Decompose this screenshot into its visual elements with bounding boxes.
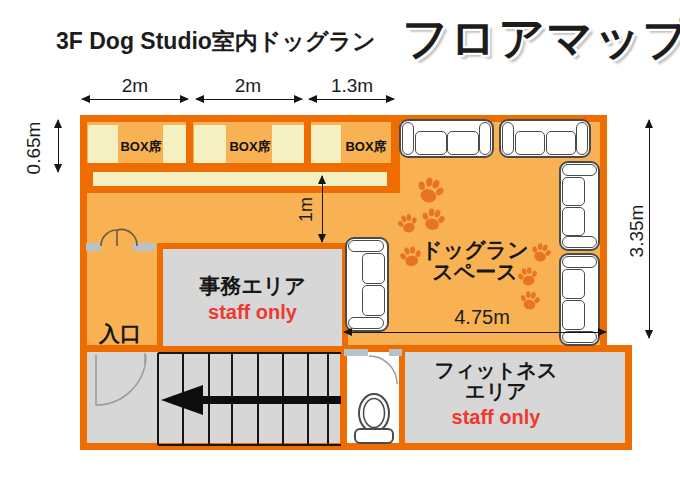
dimension-arrow-top-1: [82, 99, 188, 100]
dimension-label-right: 3.35m: [626, 196, 648, 266]
dimension-arrow-right: [649, 120, 650, 338]
sofa-top-right: [499, 119, 591, 158]
stairs: [157, 352, 343, 446]
dimension-label-top-1: 2m: [105, 75, 165, 97]
floor-map: 3F Dog Studio室内ドッグラン フロアマップ 2m 2m 1.3m 0…: [0, 0, 680, 485]
dog-run-label: ドッグラン スペース: [405, 239, 545, 283]
toilet-icon: [352, 392, 396, 446]
fitness-label-line1: フィットネス: [400, 360, 592, 381]
dimension-arrow-left: [58, 120, 59, 172]
page-title: 3F Dog Studio室内ドッグラン: [56, 26, 376, 57]
dimension-label-top-2: 2m: [218, 75, 278, 97]
dimension-label-4-75m: 4.75m: [432, 306, 532, 329]
fitness-staff-only-label: staff only: [400, 407, 592, 428]
dimension-arrow-4-75m: [344, 332, 606, 333]
toilet-wall-segment: [344, 349, 368, 356]
box-seat-label-3: BOX席: [341, 138, 391, 156]
office-label: 事務エリア: [199, 272, 305, 300]
entrance-label: 入口: [92, 320, 148, 348]
dimension-arrow-top-2: [196, 99, 302, 100]
dimension-label-top-3: 1.3m: [322, 75, 382, 97]
dog-run-label-line1: ドッグラン: [405, 239, 545, 261]
toilet-door-swing-icon: [366, 353, 402, 385]
dimension-arrow-top-3: [309, 99, 394, 100]
sofa-right-upper: [559, 161, 600, 251]
dimension-label-left: 0.65m: [23, 113, 45, 183]
sofa-center: [345, 237, 389, 332]
sofa-top-left: [399, 119, 494, 158]
box-seat-cell: [272, 125, 304, 163]
stairs-direction-arrow-icon: [161, 385, 341, 415]
box-seat-label-1: BOX席: [116, 138, 166, 156]
fitness-area-label: フィットネス エリア staff only: [400, 360, 592, 428]
box-seat-cell: [88, 125, 118, 163]
office-area: 事務エリア staff only: [157, 243, 348, 352]
paw-print-icon: [418, 205, 449, 236]
office-staff-only-label: staff only: [208, 301, 297, 324]
dog-run-label-line2: スペース: [405, 261, 545, 283]
box-seat-divider-wall: [186, 122, 193, 166]
dimension-arrow-1m: [322, 176, 323, 242]
box-seat-label-2: BOX席: [225, 138, 275, 156]
box-seat-cell: [163, 125, 186, 163]
entrance-double-door-icon: [97, 212, 141, 248]
stair-hall-door-swing-icon: [88, 353, 150, 411]
counter-shelf: [93, 172, 387, 186]
box-seat-cell: [194, 125, 226, 163]
box-seat-divider-wall: [304, 122, 311, 166]
fitness-label-line2: エリア: [400, 381, 592, 402]
box-seat-cell: [311, 125, 341, 163]
page-title-map: フロアマップ: [402, 8, 680, 70]
dimension-label-1m: 1m: [296, 190, 317, 230]
